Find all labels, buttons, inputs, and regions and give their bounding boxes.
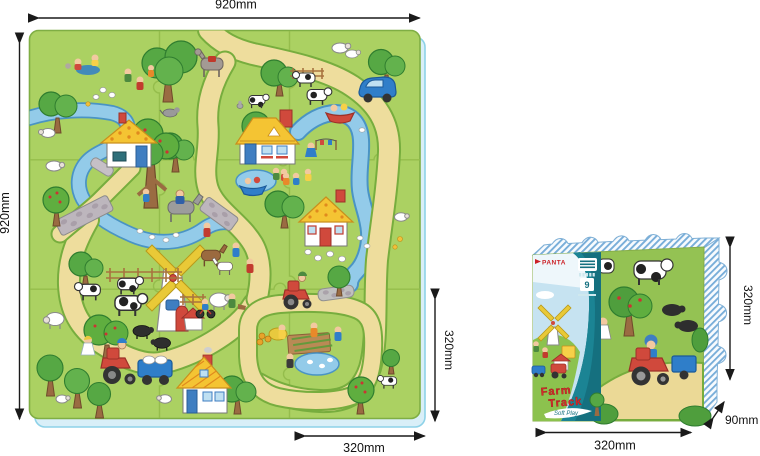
svg-text:320mm: 320mm bbox=[343, 441, 385, 455]
svg-text:Soft Play: Soft Play bbox=[554, 411, 579, 417]
svg-text:320mm: 320mm bbox=[741, 285, 755, 325]
svg-text:320mm: 320mm bbox=[594, 439, 636, 453]
svg-text:Track: Track bbox=[548, 396, 583, 410]
svg-text:920mm: 920mm bbox=[0, 192, 12, 234]
svg-text:320mm: 320mm bbox=[442, 330, 456, 370]
svg-text:90mm: 90mm bbox=[725, 413, 758, 427]
svg-text:920mm: 920mm bbox=[215, 0, 257, 12]
svg-text:PANTA: PANTA bbox=[542, 260, 566, 267]
svg-text:9: 9 bbox=[584, 280, 589, 290]
